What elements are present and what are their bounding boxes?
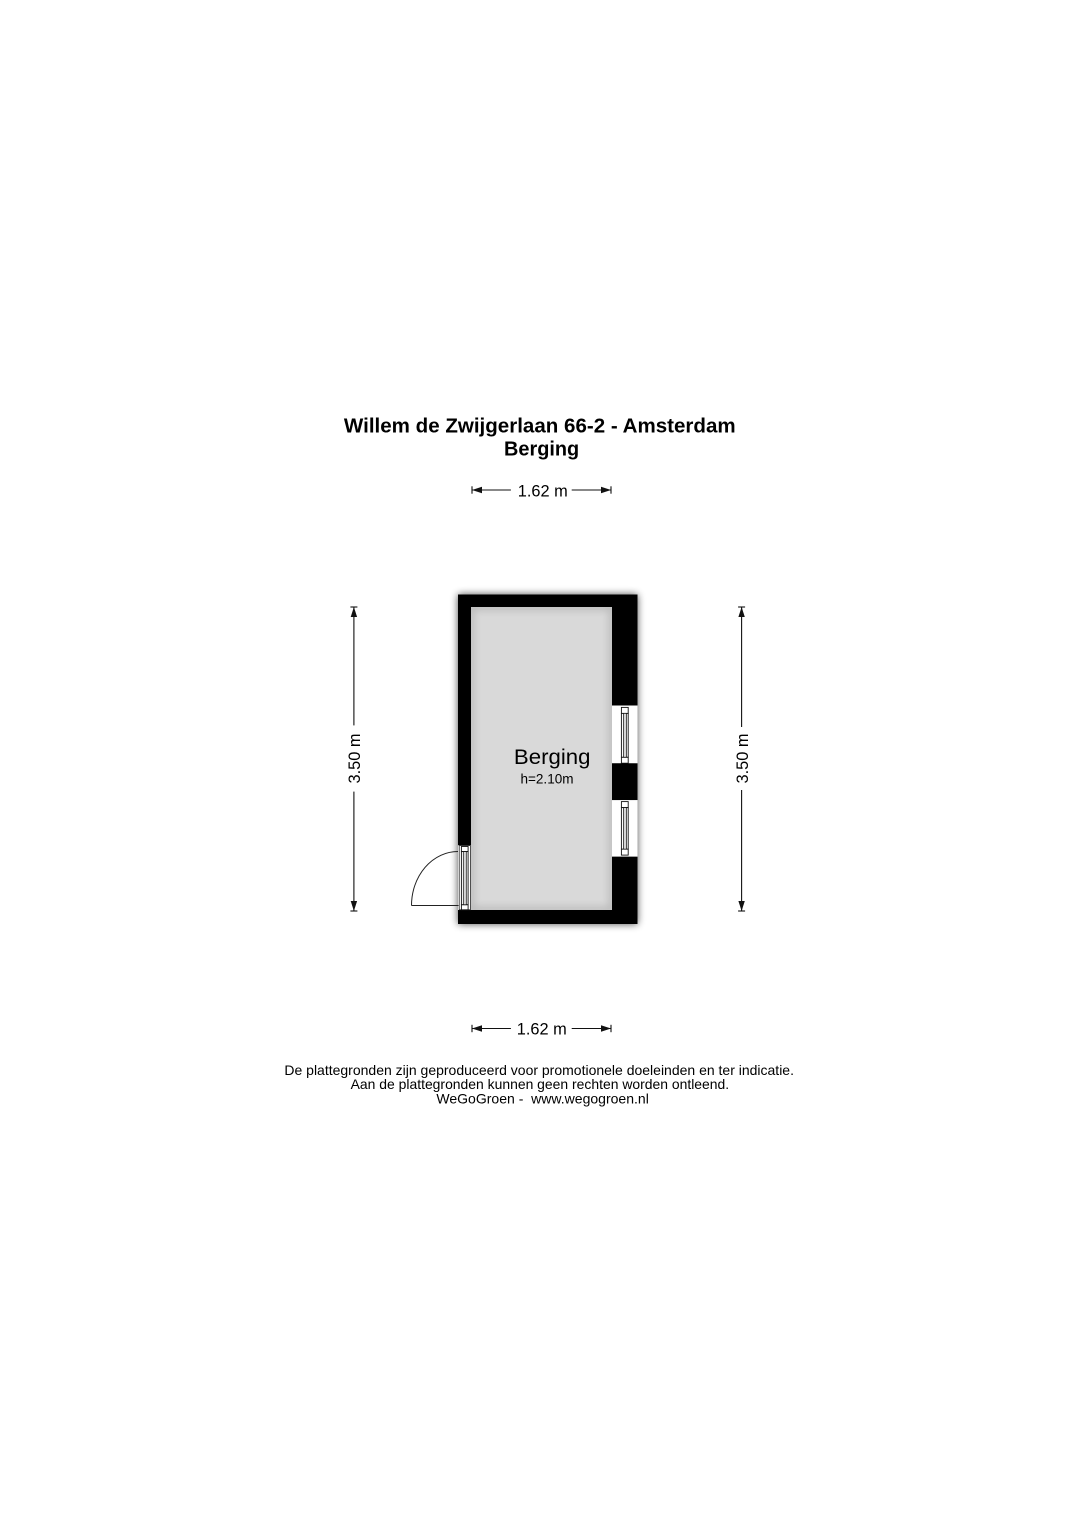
svg-text:WeGoGroen - www.wegogroen.nl: WeGoGroen - www.wegogroen.nl xyxy=(436,1091,649,1107)
svg-text:Berging: Berging xyxy=(514,746,591,769)
svg-text:3.50 m: 3.50 m xyxy=(734,734,752,784)
svg-text:Berging: Berging xyxy=(504,437,579,460)
svg-text:1.62 m: 1.62 m xyxy=(517,1020,567,1038)
svg-text:1.62 m: 1.62 m xyxy=(518,483,568,501)
svg-text:3.50 m: 3.50 m xyxy=(346,734,364,784)
svg-text:h=2.10m: h=2.10m xyxy=(521,771,574,786)
svg-text:Willem de Zwijgerlaan 66-2 - A: Willem de Zwijgerlaan 66-2 - Amsterdam xyxy=(344,415,736,438)
